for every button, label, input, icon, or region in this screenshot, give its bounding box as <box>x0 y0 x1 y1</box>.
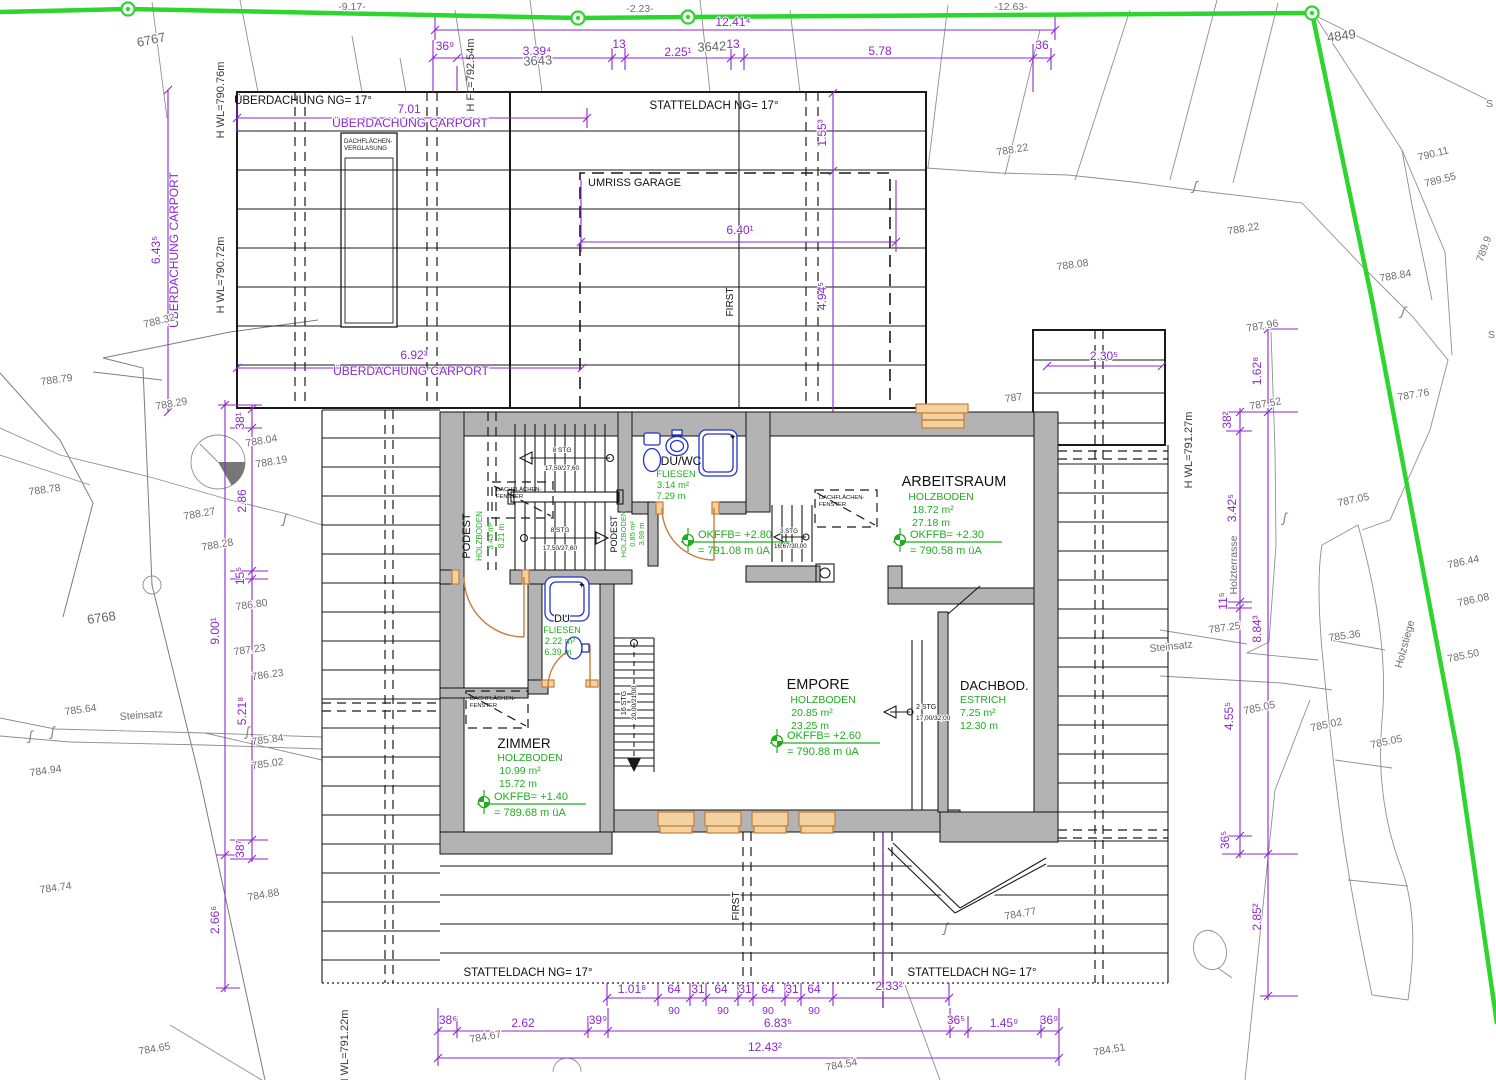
skylight-label: FENSTER <box>819 502 846 508</box>
room-finish: FLIESEN <box>656 469 696 480</box>
site-label: S <box>1486 98 1493 110</box>
wall <box>618 412 632 512</box>
parcel-number: 4849 <box>1326 26 1357 45</box>
room-area: 0.85 m² <box>628 521 637 547</box>
shower: ✦ <box>699 430 737 476</box>
carport-label: ÜBERDACHUNG CARPORT <box>167 171 181 327</box>
room-name: ARBEITSRAUM <box>902 474 1007 490</box>
break-symbol: ∫ <box>941 919 950 936</box>
dim-label: 1.55³ <box>815 119 829 146</box>
spot-elevation: 786.23 <box>251 667 285 683</box>
dim-label: 3.42⁵ <box>1225 494 1239 522</box>
spot-elevation: 787.23 <box>233 642 267 658</box>
dim-label: 5.21⁸ <box>235 697 249 725</box>
spot-elevation: 787.25 <box>1208 620 1242 636</box>
height-mark: H WL=790.72m <box>215 237 227 314</box>
garage-roof-title: STATTELDACH NG= 17° <box>649 100 778 112</box>
floor-level: OKFFB= +2.30 <box>910 529 984 541</box>
spot-elevation: 787.52 <box>1249 395 1283 412</box>
height-mark: H WL=790.76m <box>215 62 227 139</box>
room-area: 2.22 m² <box>545 636 576 646</box>
dim-label: 36⁵ <box>1218 831 1232 849</box>
room-finish: HOLZBODEN <box>475 511 484 561</box>
parcel-number: 6767 <box>135 29 166 50</box>
spot-elevation: 789.55 <box>1423 170 1457 189</box>
spot-elevation: 788.22 <box>996 141 1030 158</box>
spot-elevation: 787.05 <box>1336 491 1370 509</box>
stair-label: 20,00/21,00 <box>631 685 638 720</box>
room-area: 7.25 m² <box>960 707 996 719</box>
room-perimeter: 7.29 m <box>656 491 685 502</box>
wall <box>746 566 820 582</box>
roof-label: STATTELDACH NG= 17° <box>463 967 592 979</box>
spot-elevation: 788.08 <box>1056 257 1090 273</box>
wall <box>528 584 542 688</box>
spot-elevation: 785.64 <box>64 702 98 718</box>
room-name: EMPORE <box>787 677 850 693</box>
room-perimeter: 6.39 m <box>544 647 572 657</box>
glazing-label: DACHFLÄCHEN- <box>344 138 392 145</box>
dim-label: 2.25¹ <box>664 45 691 59</box>
wall <box>888 588 1034 604</box>
garage-outline-label: UMRISS GARAGE <box>588 177 681 189</box>
spot-elevation: 788.19 <box>255 453 289 470</box>
spot-elevation: 786.44 <box>1446 553 1480 571</box>
site-label: Holzstiege <box>1393 619 1417 670</box>
site-plan-drawing: ∫ ∫ ∫ ∫ ∫ ∫ ∫ ∫ <box>0 0 1496 1080</box>
skylight-label: DACHFLÄCHEN- <box>470 695 515 702</box>
carport-title: ÜBERDACHUNG NG= 17° <box>234 95 372 107</box>
spot-elevation: 788.27 <box>183 505 217 522</box>
dim-label: 90 <box>717 1005 729 1017</box>
dim-label: 1.45⁹ <box>990 1016 1019 1030</box>
site-label: Steinsatz <box>119 708 163 723</box>
dim-label: 6.40¹ <box>726 223 753 237</box>
dim-label: 2.62 <box>511 1016 535 1030</box>
height-mark: H WL=791.22m <box>339 1010 351 1080</box>
break-symbol: ∫ <box>49 723 57 740</box>
spot-elevation: 788.79 <box>40 372 74 388</box>
dim-label: 2.66⁶ <box>208 906 222 934</box>
dim-label: 38⁶ <box>439 1013 457 1027</box>
room-name: DACHBOD. <box>960 678 1029 693</box>
spot-elevation: 786.08 <box>1456 591 1490 609</box>
spot-elevation: 788.28 <box>201 536 235 553</box>
dim-label: 2.85² <box>1250 903 1264 930</box>
spot-elevation: 784.94 <box>29 763 63 779</box>
site-label: Holzterrasse <box>1228 535 1240 594</box>
floor-level: OKFFB= +1.40 <box>494 791 568 803</box>
boundary-distance: -12.63- <box>994 1 1028 13</box>
floor-level: OKFFB= +2.80 <box>698 529 772 541</box>
skylight-label: FENSTER <box>470 703 497 709</box>
break-symbol: ∫ <box>1190 177 1200 194</box>
height-mark: H FL=792.54m <box>465 38 477 111</box>
dim-label: 39⁹ <box>589 1013 608 1027</box>
skylight-label: DACHFLÄCHEN- <box>819 494 864 501</box>
room-finish: HOLZBODEN <box>497 752 562 764</box>
dim-label: 6.92³ <box>400 348 427 362</box>
stair-label: 2 STG <box>916 704 936 711</box>
spot-elevation: 787.96 <box>1246 317 1280 334</box>
dim-label: 13 <box>612 37 626 51</box>
ridge-label: FIRST <box>725 288 736 317</box>
stair-label: 3 STG <box>780 528 798 535</box>
room-area: 10.99 m² <box>499 765 541 777</box>
spot-elevation: 784.54 <box>825 1056 859 1073</box>
room-finish: ESTRICH <box>960 694 1006 706</box>
dim-label: 2.30⁵ <box>1090 349 1118 363</box>
room-perimeter: 8.21 m <box>497 523 506 548</box>
floor-level-alt: = 790.88 m üA <box>787 746 860 758</box>
spot-elevation: 785.02 <box>1309 716 1343 734</box>
wall <box>1034 412 1058 842</box>
spot-elevation: 785.05 <box>1242 699 1276 717</box>
dim-label: 36⁹ <box>1040 1013 1059 1027</box>
spot-elevation: 789.9 <box>1474 234 1494 263</box>
spot-elevation: 784.65 <box>138 1040 172 1057</box>
dim-label: 64 <box>714 982 728 996</box>
room-area: 3.43 m² <box>486 522 495 549</box>
wall <box>440 412 464 854</box>
spot-elevation: 790.11 <box>1417 144 1450 163</box>
dim-label: 36 <box>1035 38 1049 52</box>
spot-elevation: 784.77 <box>1004 905 1038 922</box>
room-finish: HOLZBODEN <box>619 511 628 558</box>
carport-label: ÜBERDACHUNG CARPORT <box>332 116 488 130</box>
roof-glazing <box>341 133 397 327</box>
carport-label: ÜBERDACHUNG CARPORT <box>333 364 489 378</box>
dim-label: 3.39⁴ <box>523 44 552 58</box>
boundary-distance: -9.17- <box>338 1 366 13</box>
dim-label: 7.01 <box>397 102 421 116</box>
dim-label: 31 <box>738 982 752 996</box>
dim-label: 4.55⁵ <box>1222 702 1236 730</box>
dim-label: 4.94⁵ <box>815 282 829 310</box>
dim-label: 31 <box>785 982 799 996</box>
spot-elevation: 788.04 <box>245 432 279 449</box>
room-name: DU <box>554 613 570 625</box>
wall <box>940 812 1058 842</box>
dim-label: 38⁷ <box>233 840 247 858</box>
stair-label: 17,00/32,00 <box>916 715 951 722</box>
room-perimeter: 27.18 m <box>912 517 950 529</box>
room-finish: HOLZBODEN <box>908 491 973 503</box>
room-perimeter: 15.72 m <box>499 778 537 790</box>
floor-level-alt: = 790.58 m üA <box>910 545 983 557</box>
dim-label: 15⁵ <box>233 567 247 585</box>
spot-elevation: 786.80 <box>235 597 269 613</box>
dim-label: 8.84³ <box>1250 615 1264 642</box>
dim-label: 90 <box>668 1005 680 1017</box>
room-name: ZIMMER <box>497 736 550 751</box>
dim-label: 38² <box>1220 411 1234 428</box>
dim-label: 6.43⁵ <box>149 236 163 264</box>
dim-label: 1.62⁸ <box>1250 357 1264 385</box>
spot-elevation: 784.51 <box>1093 1041 1127 1058</box>
site-label: Steinsatz <box>1149 639 1193 655</box>
room-name: PODEST <box>461 513 473 559</box>
parcel-number: 3642 <box>697 38 727 54</box>
spot-elevation: 788.22 <box>1227 220 1261 237</box>
dim-label: 36⁹ <box>436 39 455 53</box>
dim-label: 64 <box>667 982 681 996</box>
wall <box>938 612 948 812</box>
floor-level-alt: = 791.08 m üA <box>698 545 771 557</box>
wall <box>600 584 614 832</box>
room-perimeter: 3.98 m <box>637 523 646 546</box>
room-finish: HOLZBODEN <box>790 694 855 706</box>
roof-label: STATTELDACH NG= 17° <box>907 967 1036 979</box>
dim-label: 12.43² <box>748 1040 782 1054</box>
spot-elevation: 787 <box>1004 391 1023 405</box>
sparkle-icon: ✦ <box>578 580 586 590</box>
room-perimeter: 12.30 m <box>960 720 998 732</box>
dim-label: 2.86 <box>235 489 249 513</box>
parcel-number: 6768 <box>86 608 117 627</box>
dim-label: 13 <box>726 37 740 51</box>
break-symbol: ∫ <box>27 727 35 744</box>
spot-elevation: 785.50 <box>1446 647 1480 665</box>
spot-elevation: 788.84 <box>1379 267 1413 284</box>
dim-label: 5.78 <box>868 44 892 58</box>
wc-toilet <box>644 433 661 472</box>
dim-label: 31 <box>691 982 705 996</box>
dim-label: 38¹ <box>233 412 247 429</box>
spot-elevation: 787.76 <box>1397 386 1431 403</box>
skylight-label: DACHFLÄCHEN- <box>496 486 541 493</box>
room-area: 20.85 m² <box>791 707 833 719</box>
ridge-label: FIRST <box>731 892 742 921</box>
dim-label: 1.01⁸ <box>618 982 646 996</box>
stair-label: 17,50/27,60 <box>545 465 580 472</box>
room-name: PODEST <box>609 515 619 553</box>
spot-elevation: 788.78 <box>28 482 62 498</box>
skylight-label: FENSTER <box>496 494 523 500</box>
room-area: 3.14 m² <box>657 480 689 491</box>
spot-elevation: 788.29 <box>155 395 189 412</box>
stair-label: 16,67/30,00 <box>774 543 807 550</box>
room-finish: FLIESEN <box>543 625 581 635</box>
spot-elevation: 785.36 <box>1328 628 1362 644</box>
boundary-distance: -2.23- <box>626 3 654 15</box>
dim-label: 6.83⁵ <box>764 1016 792 1030</box>
tree-symbol <box>218 462 245 485</box>
wall <box>746 412 770 512</box>
annotation-layer: -9.17- -2.23- -12.63- 6767 3642 3643 484… <box>28 1 1495 1080</box>
dim-label: 2.33² <box>875 979 902 993</box>
floor-level-alt: = 789.68 m üA <box>494 807 567 819</box>
dim-label: 90 <box>808 1005 820 1017</box>
rock-symbol <box>1188 926 1232 975</box>
room-name: DU/WC <box>661 454 702 468</box>
dim-label: 64 <box>761 982 775 996</box>
break-symbol: ∫ <box>1280 509 1289 526</box>
wall <box>440 832 612 854</box>
room-area: 18.72 m² <box>912 504 954 516</box>
stair-label: 17,50/27,60 <box>543 545 578 552</box>
spot-elevation: 785.84 <box>251 732 285 748</box>
stair-label: 8 STG <box>553 447 572 454</box>
glazing-label: VERGLASUNG <box>344 145 387 152</box>
stair-label: 16 STG <box>621 691 628 715</box>
sparkle-icon: ✦ <box>729 432 737 442</box>
spot-elevation: 785.05 <box>1369 733 1403 751</box>
spot-elevation: 784.88 <box>247 886 281 903</box>
dim-label: 9.00¹ <box>208 617 222 644</box>
stair-label: 8 STG <box>551 527 570 534</box>
spot-elevation: 785.02 <box>251 756 285 772</box>
floor-level: OKFFB= +2.60 <box>787 730 861 742</box>
height-mark: H WL=791.27m <box>1183 412 1195 489</box>
spot-elevation: 784.74 <box>39 880 73 896</box>
dim-label: 12.41⁴ <box>715 15 750 29</box>
dim-label: 64 <box>807 982 821 996</box>
dim-label: 36⁵ <box>947 1013 965 1027</box>
site-label: S <box>1488 329 1495 341</box>
